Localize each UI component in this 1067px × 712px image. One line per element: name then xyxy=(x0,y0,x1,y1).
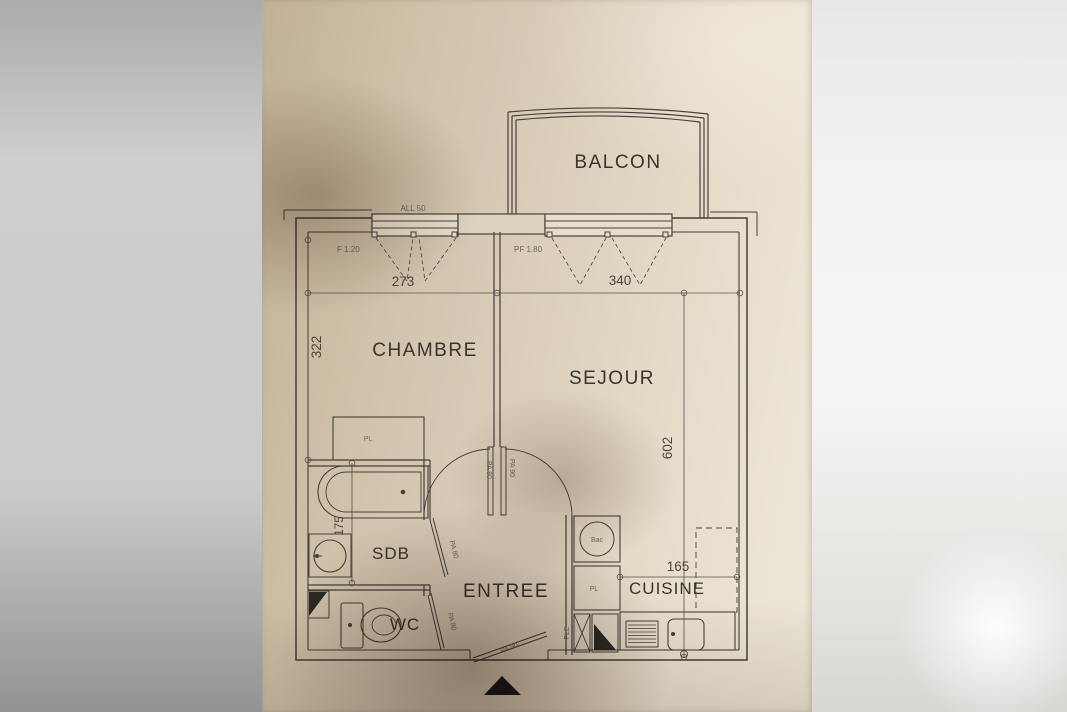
paper-sheet xyxy=(262,0,813,712)
background-right xyxy=(812,0,1067,712)
floor-plan-photo: BALCON ALL 50 F 1.20 xyxy=(0,0,1067,712)
background-left xyxy=(0,0,262,712)
